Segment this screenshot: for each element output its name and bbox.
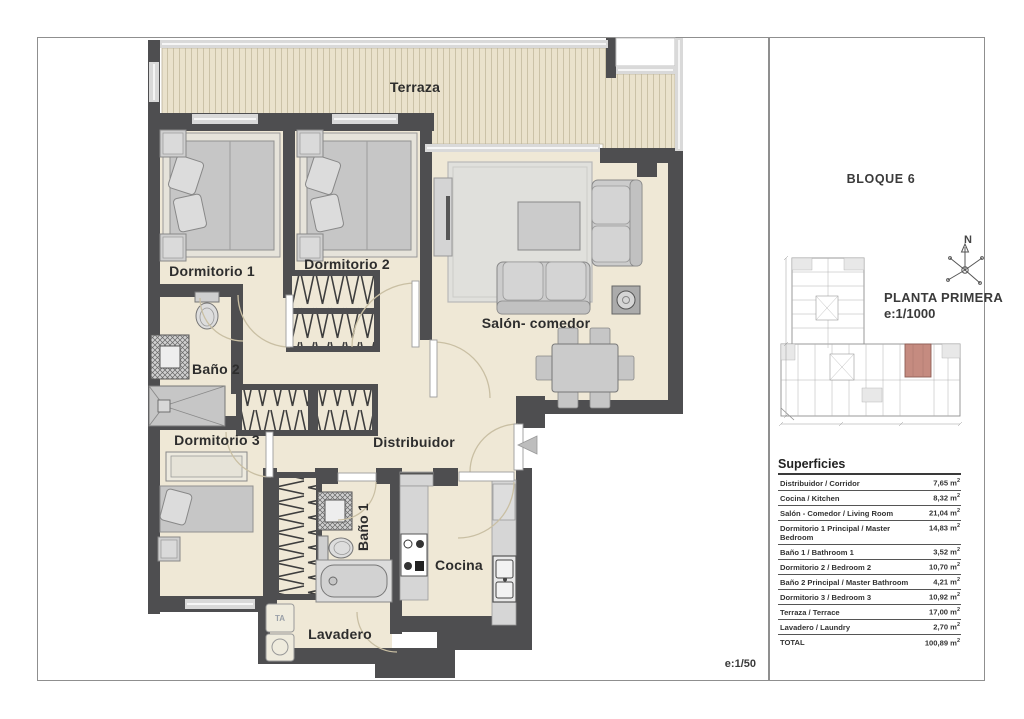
window-bedroom3: [185, 599, 255, 609]
surface-row: Baño 2 Principal / Master Bathroom4,21 m…: [778, 575, 961, 590]
stove: [401, 534, 427, 576]
surface-row: Lavadero / Laundry2,70 m2: [778, 620, 961, 635]
surface-row: Dormitorio 1 Principal / Master Bedroom1…: [778, 521, 961, 545]
site-plan-map: [776, 248, 966, 434]
room-label-dormitorio3: Dormitorio 3: [174, 432, 260, 448]
room-label-lavadero: Lavadero: [308, 626, 372, 642]
floor-scale: e:1/1000: [884, 306, 935, 321]
surface-row: Dormitorio 3 / Bedroom 310,92 m2: [778, 590, 961, 605]
sofa-horizontal: [497, 262, 590, 314]
highlighted-unit: [905, 344, 931, 377]
bed-dormitorio2: [297, 130, 417, 261]
wardrobe-laundry: [273, 472, 322, 600]
room-label-dormitorio2: Dormitorio 2: [304, 256, 390, 272]
floor-plan-sheet: { "page": { "scale_label": "e:1/50" }, "…: [0, 0, 1024, 719]
wardrobe-corridor: [236, 384, 378, 436]
plant-table: [612, 286, 640, 314]
bathtub: [316, 560, 392, 602]
sofa-vertical: [592, 180, 642, 266]
toilet-bath1: [318, 536, 353, 560]
room-label-bano1: Baño 1: [355, 503, 371, 551]
surface-row: Distribuidor / Corridor7,65 m2: [778, 476, 961, 491]
terrace-sliding-door: [425, 144, 600, 152]
window-bedroom1: [192, 114, 258, 124]
tv-unit: [434, 178, 452, 256]
window-bedroom2: [332, 114, 398, 124]
floor-title: PLANTA PRIMERA: [884, 290, 1003, 305]
vanity-bath2: [151, 335, 189, 379]
room-label-dormitorio1: Dormitorio 1: [169, 263, 255, 279]
room-label-salon: Salón- comedor: [482, 315, 591, 331]
coffee-table: [518, 202, 580, 250]
surface-row-total: TOTAL100,89 m2: [778, 635, 961, 649]
wardrobe-dormitorio2: [286, 270, 380, 352]
terrace-top-rail: [160, 40, 608, 48]
water-heater-label: TA: [275, 614, 285, 623]
surface-row: Dormitorio 2 / Bedroom 210,70 m2: [778, 560, 961, 575]
vanity-bath1: [318, 492, 352, 530]
surfaces-table: Superficies Distribuidor / Corridor7,65 …: [778, 457, 961, 649]
bed-dormitorio1: [160, 130, 280, 261]
room-label-bano2: Baño 2: [192, 361, 240, 377]
apartment-floor-plan: TA Terraza Dormitorio 1: [37, 37, 769, 683]
window-left: [149, 62, 159, 102]
surface-row: Terraza / Terrace17,00 m2: [778, 605, 961, 620]
plan-scale-label: e:1/50: [680, 658, 756, 670]
room-label-terraza: Terraza: [390, 79, 440, 95]
terrace-notch: [616, 38, 675, 66]
surfaces-title: Superficies: [778, 457, 961, 475]
toilet-bath2: [195, 292, 219, 329]
kitchen-sink: [493, 556, 516, 602]
surface-row: Salón - Comedor / Living Room21,04 m2: [778, 506, 961, 521]
laundry-fixtures: TA: [266, 604, 294, 661]
surface-row: Baño 1 / Bathroom 13,52 m2: [778, 545, 961, 560]
block-title: BLOQUE 6: [820, 172, 942, 186]
terrace-notch-rail: [616, 66, 675, 74]
room-label-cocina: Cocina: [435, 557, 483, 573]
shower-bath2: [149, 386, 225, 426]
surface-row: Cocina / Kitchen8,32 m2: [778, 491, 961, 506]
terrace-right-rail: [675, 38, 683, 151]
room-label-distribuidor: Distribuidor: [373, 434, 455, 450]
